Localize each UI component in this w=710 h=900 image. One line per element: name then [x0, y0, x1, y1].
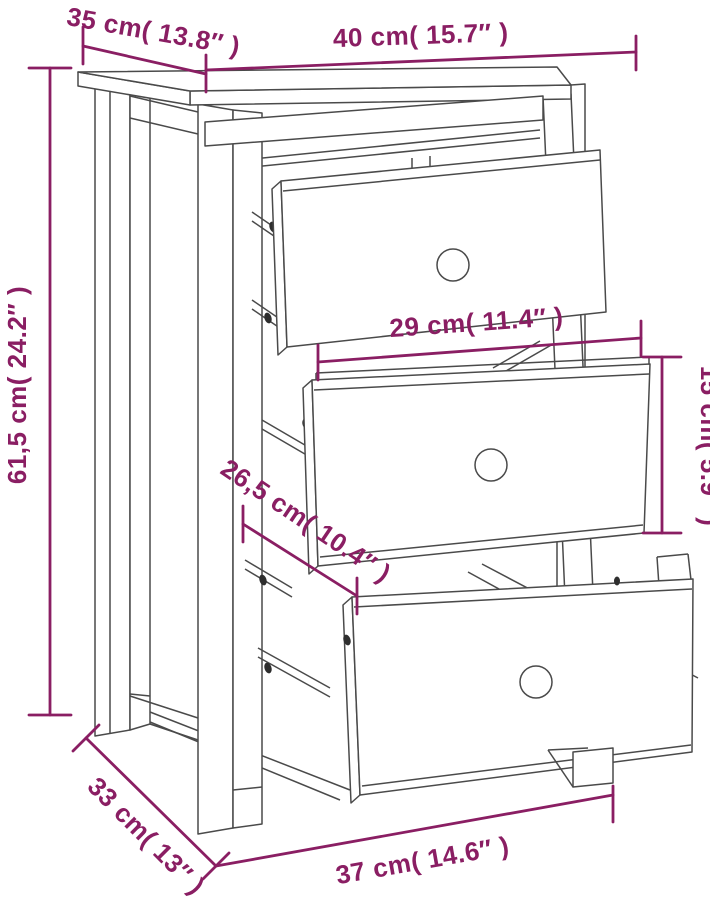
- dim-drawer-height-label: 15 cm( 5.9″ ): [695, 366, 710, 527]
- drawer-bottom: [258, 554, 693, 803]
- dimension-height: [29, 68, 71, 715]
- dim-height-label: 61,5 cm( 24.2″ ): [2, 286, 32, 484]
- dim-top-width-label: 40 cm( 15.7″ ): [332, 17, 508, 53]
- furniture-diagram-svg: 35 cm( 13.8″ ) 40 cm( 15.7″ ) 61,5 cm( 2…: [0, 0, 710, 900]
- screw-icon: [614, 577, 620, 586]
- product-dimension-diagram: 35 cm( 13.8″ ) 40 cm( 15.7″ ) 61,5 cm( 2…: [0, 0, 710, 900]
- drawer-bottom-knob-hole: [520, 666, 552, 698]
- bedside-cabinet-drawing: [78, 67, 698, 834]
- drawer-middle-knob-hole: [475, 449, 507, 481]
- screw-icon: [263, 662, 273, 675]
- drawer-top-knob-hole: [437, 249, 469, 281]
- dim-base-depth-label: 33 cm( 13″ ): [82, 771, 211, 900]
- dim-top-depth-label: 35 cm( 13.8″ ): [65, 1, 243, 61]
